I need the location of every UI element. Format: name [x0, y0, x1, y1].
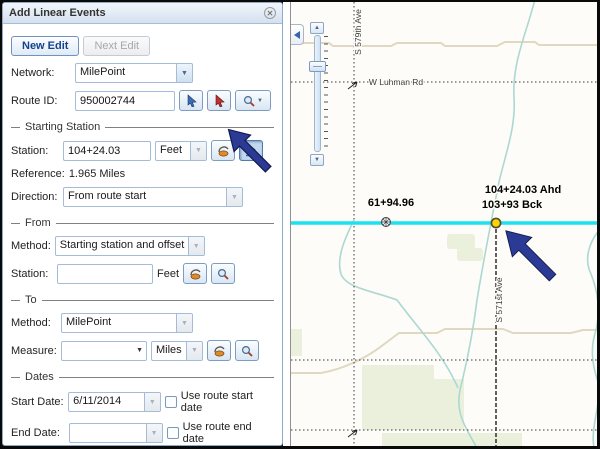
network-label: Network:	[11, 67, 71, 79]
label-picked-back: 103+93 Bck	[482, 199, 543, 211]
start-date-value: 6/11/2014	[69, 393, 144, 411]
from-method-value: Starting station and offset	[56, 237, 188, 255]
panel-map-divider	[283, 2, 290, 446]
measure-units-value: Miles	[152, 342, 186, 360]
annotation-arrow-map	[506, 231, 556, 281]
from-measure-button[interactable]	[183, 263, 207, 284]
measure-label: Measure:	[11, 345, 57, 357]
measure-combo[interactable]: ▼	[61, 341, 147, 361]
to-method-label: Method:	[11, 317, 57, 329]
street-label-right-avenue: S 571st Ave	[494, 277, 504, 322]
direction-label: Direction:	[11, 191, 59, 203]
use-route-end-date-label: Use route end date	[183, 421, 274, 445]
route-id-input[interactable]	[75, 91, 175, 111]
from-method-caret-icon: ▼	[188, 237, 204, 255]
end-date-value	[70, 424, 146, 442]
use-route-start-date-label: Use route start date	[181, 390, 274, 414]
measure-locate-button[interactable]	[207, 340, 231, 361]
start-date-label: Start Date:	[11, 396, 64, 408]
street-label-luhman-rd: W Luhman Rd	[369, 77, 424, 87]
direction-dropdown[interactable]: From route start ▼	[63, 187, 243, 207]
label-station-ref: 61+94.96	[368, 197, 414, 209]
station-label: Station:	[11, 145, 59, 157]
map-canvas[interactable]: S 579th Ave S 571st Ave W Luhman Rd 61+9…	[290, 2, 597, 446]
zoom-slider-thumb[interactable]	[309, 61, 326, 72]
to-method-value: MilePoint	[62, 314, 176, 332]
measure-units-dropdown[interactable]: Miles ▼	[151, 341, 203, 361]
from-units-label: Feet	[157, 268, 179, 280]
reference-label: Reference:	[11, 168, 65, 180]
select-route-on-map-button[interactable]	[179, 90, 203, 111]
zoom-slider-track[interactable]	[314, 35, 321, 152]
measure-value	[62, 342, 133, 360]
chevron-left-icon	[294, 31, 300, 39]
zoom-slider: ▲ ▼	[305, 20, 333, 168]
reference-value: 1.965 Miles	[69, 168, 125, 180]
red-pointer-icon	[213, 94, 226, 107]
from-station-input[interactable]	[57, 264, 153, 284]
zoom-in-button[interactable]: ▲	[310, 22, 324, 34]
direction-value: From route start	[64, 188, 226, 206]
end-date-caret-icon: ▼	[146, 424, 162, 442]
add-linear-events-panel: Add Linear Events ✕ New Edit Next Edit N…	[2, 2, 283, 446]
station-locator-icon	[189, 267, 202, 280]
zoom-out-button[interactable]: ▼	[310, 154, 324, 166]
use-route-start-date-checkbox[interactable]	[165, 396, 177, 408]
section-from: From	[11, 217, 274, 229]
measure-caret-icon[interactable]: ▼	[133, 347, 146, 354]
zoom-slider-ticks	[324, 36, 328, 152]
reference-station-marker[interactable]	[382, 218, 391, 227]
use-route-end-date-checkbox[interactable]	[167, 427, 179, 439]
start-date-caret-icon: ▼	[144, 393, 160, 411]
street-label-left-avenue: S 579th Ave	[353, 9, 363, 55]
chevron-down-icon: ▼	[257, 98, 263, 104]
annotation-arrow-panel	[227, 128, 274, 175]
clear-route-selection-button[interactable]	[207, 90, 231, 111]
panel-titlebar: Add Linear Events ✕	[3, 3, 282, 24]
measure-units-caret-icon: ▼	[186, 342, 202, 360]
picked-station-marker[interactable]	[491, 218, 500, 227]
road-direction-arrows	[348, 82, 357, 437]
field-areas	[291, 234, 522, 446]
station-locator-icon	[213, 344, 226, 357]
station-units-dropdown[interactable]: Feet ▼	[155, 141, 207, 161]
magnifier-icon	[217, 268, 229, 280]
to-method-caret-icon: ▼	[176, 314, 192, 332]
blue-pointer-icon	[185, 94, 198, 107]
end-date-picker[interactable]: ▼	[69, 423, 163, 443]
end-date-label: End Date:	[11, 427, 65, 439]
from-station-label: Station:	[11, 268, 53, 280]
station-units-caret-icon: ▼	[190, 142, 206, 160]
magnifier-icon	[241, 345, 253, 357]
new-edit-button[interactable]: New Edit	[11, 36, 79, 56]
app-window: Add Linear Events ✕ New Edit Next Edit N…	[0, 0, 600, 449]
dirt-roads	[291, 42, 597, 373]
route-search-dropdown-button[interactable]: ▼	[235, 90, 271, 111]
route-id-label: Route ID:	[11, 95, 71, 107]
magnifier-icon	[243, 95, 255, 107]
network-caret-icon[interactable]: ▼	[176, 64, 192, 82]
station-units-value: Feet	[156, 142, 190, 160]
panel-collapse-tab[interactable]	[291, 24, 304, 45]
to-method-dropdown[interactable]: MilePoint ▼	[61, 313, 193, 333]
next-edit-button[interactable]: Next Edit	[83, 36, 150, 56]
direction-caret-icon: ▼	[226, 188, 242, 206]
from-method-label: Method:	[11, 240, 51, 252]
measure-search-button[interactable]	[235, 340, 259, 361]
station-input[interactable]	[63, 141, 151, 161]
close-icon[interactable]: ✕	[264, 7, 276, 19]
section-to: To	[11, 294, 274, 306]
network-value: MilePoint	[76, 64, 176, 82]
from-search-button[interactable]	[211, 263, 235, 284]
panel-title: Add Linear Events	[9, 7, 106, 19]
network-dropdown[interactable]: MilePoint ▼	[75, 63, 193, 83]
start-date-picker[interactable]: 6/11/2014 ▼	[68, 392, 161, 412]
section-dates: Dates	[11, 371, 274, 383]
from-method-dropdown[interactable]: Starting station and offset ▼	[55, 236, 205, 256]
label-picked-ahead: 104+24.03 Ahd	[485, 184, 561, 196]
